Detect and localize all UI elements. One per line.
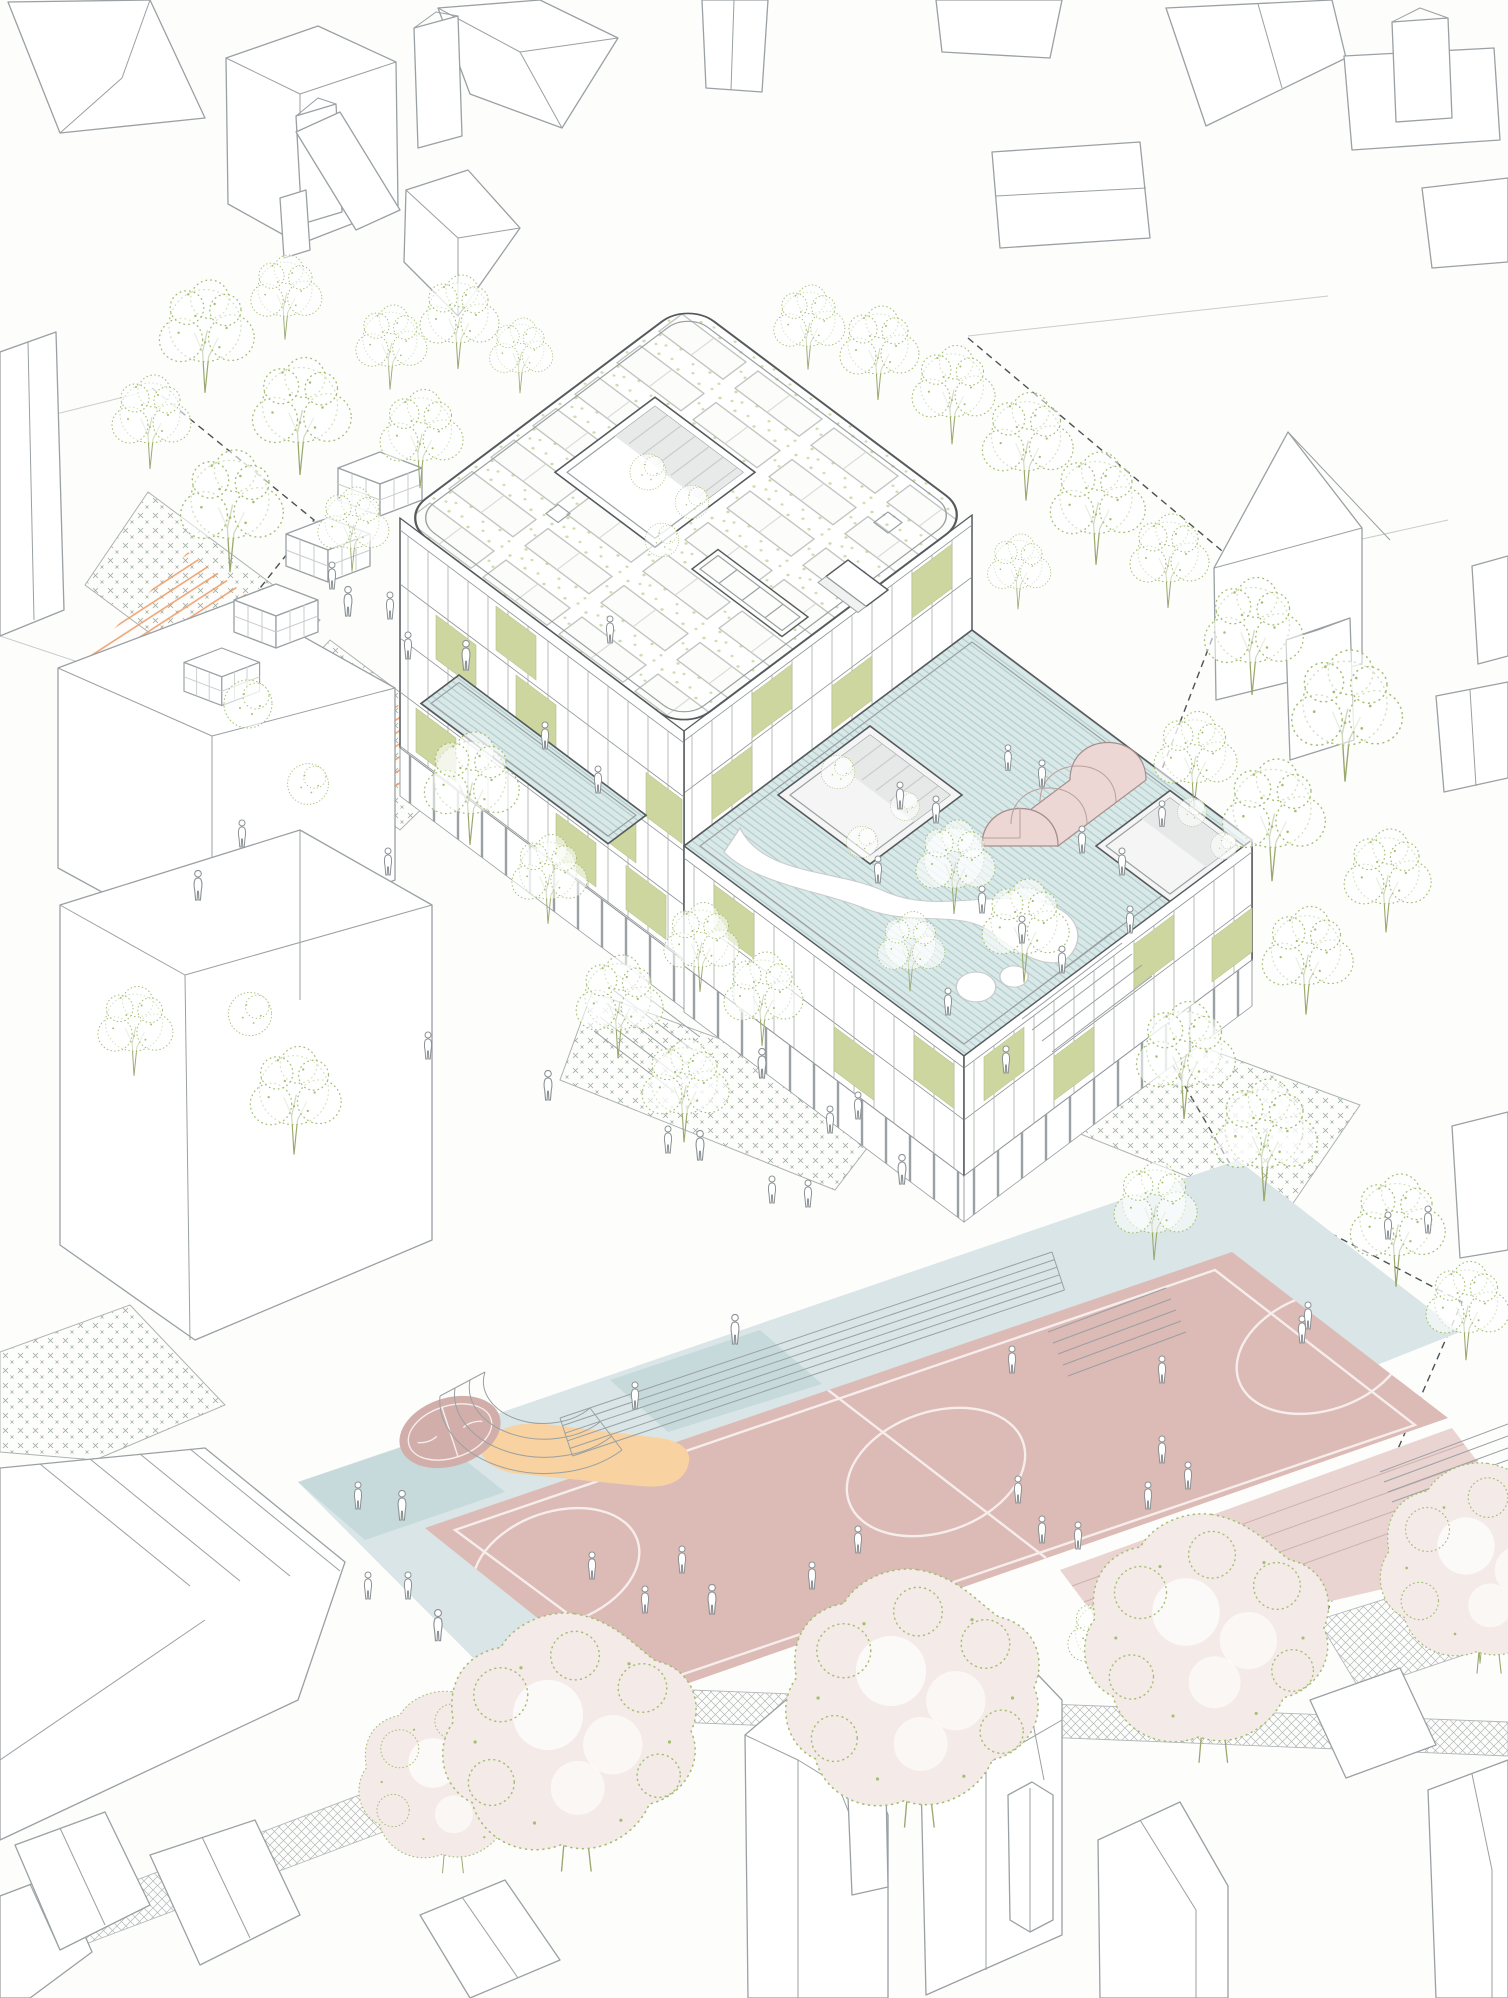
- context-building: [1452, 1112, 1508, 1258]
- context-building: [60, 830, 432, 1340]
- context-building: [1428, 1760, 1508, 1998]
- courtyard-planting: [1178, 798, 1207, 827]
- courtyard-planting: [1211, 833, 1237, 859]
- site-axonometric-drawing: [0, 0, 1508, 1998]
- shrub: [288, 764, 329, 805]
- courtyard-planting: [891, 792, 920, 821]
- context-building: [0, 332, 64, 636]
- shrub: [224, 680, 272, 728]
- context-building: [936, 0, 1062, 58]
- courtyard-planting: [645, 523, 679, 557]
- courtyard-planting: [630, 454, 666, 490]
- context-building: [280, 190, 310, 258]
- context-building: [702, 0, 768, 92]
- context-building: [992, 142, 1150, 248]
- courtyard-planting: [821, 755, 855, 789]
- illustration-canvas: [0, 0, 1508, 1998]
- shrub: [228, 992, 271, 1035]
- courtyard-planting: [675, 485, 709, 519]
- context-building: [1422, 178, 1508, 268]
- context-building: [1472, 556, 1508, 664]
- context-building: [1436, 682, 1508, 792]
- courtyard-planting: [846, 826, 877, 857]
